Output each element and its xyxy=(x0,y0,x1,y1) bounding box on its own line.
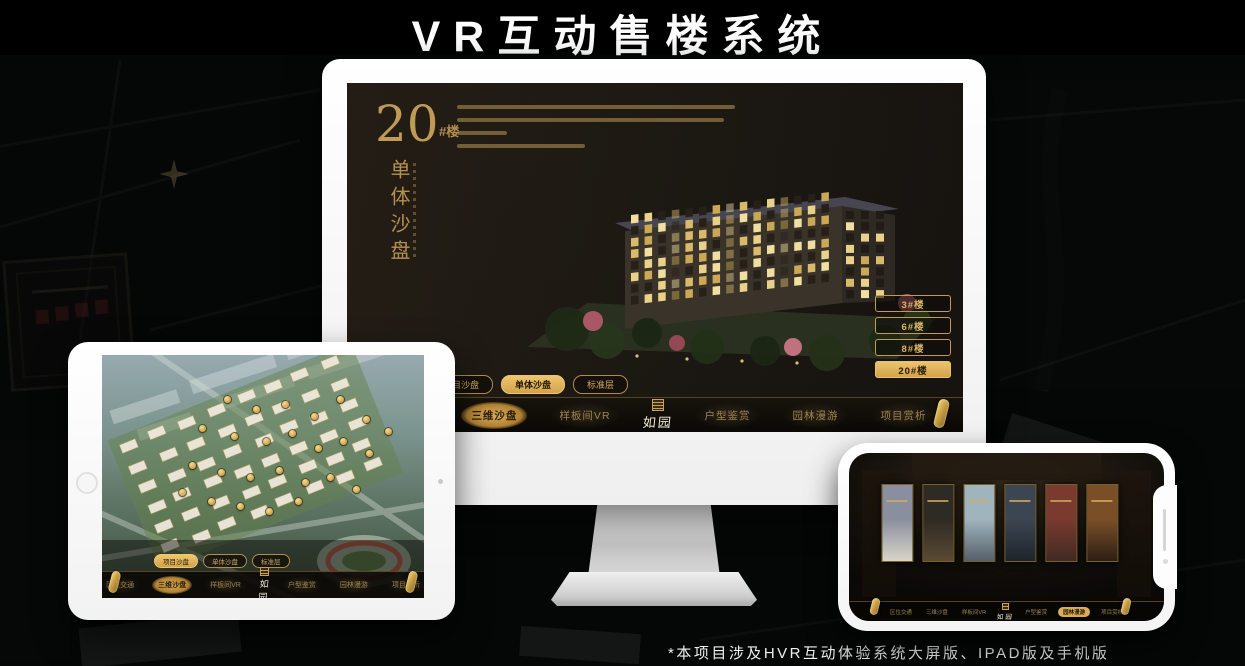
building-marker[interactable] xyxy=(276,467,283,474)
floor-button[interactable]: 8#楼 xyxy=(875,339,951,356)
tablet-screen: 项目沙盘单体沙盘标准层 区位交通三维沙盘样板间VR如园户型鉴赏园林漫游项目赏析 xyxy=(102,355,424,598)
nav-item-园林漫游[interactable]: 园林漫游 xyxy=(334,576,374,594)
logo-text: 如园 xyxy=(997,611,1015,621)
monitor-stand-base xyxy=(551,572,757,606)
logo-seal-icon xyxy=(260,567,269,576)
nav-item-三维沙盘[interactable]: 三维沙盘 xyxy=(461,402,527,429)
phone-speaker xyxy=(1163,509,1166,551)
gallery-panel[interactable] xyxy=(922,484,954,562)
hero-building-number: 20 xyxy=(375,99,439,149)
building-marker[interactable] xyxy=(199,425,206,432)
footnote: *本项目涉及HVR互动体验系统大屏版、IPAD版及手机版 xyxy=(668,642,1109,663)
page-title: VR互动售楼系统 xyxy=(0,2,1245,64)
hero-paragraph-line xyxy=(457,131,507,135)
nav-item-样板间VR[interactable]: 样板间VR xyxy=(549,402,620,429)
nav-logo: 如园 xyxy=(643,399,673,431)
building-marker[interactable] xyxy=(327,474,334,481)
phone-bottom-nav: 区位交通三维沙盘样板间VR如园户型鉴赏园林漫游项目赏析 xyxy=(849,601,1164,621)
gallery-panel[interactable] xyxy=(1045,484,1077,562)
nav-item-户型鉴赏[interactable]: 户型鉴赏 xyxy=(282,576,322,594)
building-marker[interactable] xyxy=(385,428,392,435)
nav-item-项目赏析[interactable]: 项目赏析 xyxy=(871,402,937,429)
building-marker[interactable] xyxy=(282,401,289,408)
building-marker[interactable] xyxy=(231,433,238,440)
phone-screen: 区位交通三维沙盘样板间VR如园户型鉴赏园林漫游项目赏析 xyxy=(849,453,1164,621)
building-marker[interactable] xyxy=(353,486,360,493)
phone-device: 区位交通三维沙盘样板间VR如园户型鉴赏园林漫游项目赏析 xyxy=(838,443,1175,631)
gallery-panel[interactable] xyxy=(1086,484,1118,562)
subtab-单体沙盘[interactable]: 单体沙盘 xyxy=(203,554,247,568)
building-marker[interactable] xyxy=(179,489,186,496)
monitor-stand-neck xyxy=(588,505,720,577)
nav-item-户型鉴赏[interactable]: 户型鉴赏 xyxy=(695,402,761,429)
floor-button[interactable]: 6#楼 xyxy=(875,317,951,334)
nav-item-样板间VR[interactable]: 样板间VR xyxy=(204,576,247,594)
gallery-panel[interactable] xyxy=(1004,484,1036,562)
floor-button[interactable]: 20#楼 xyxy=(875,361,951,378)
building-marker[interactable] xyxy=(237,503,244,510)
hero-paragraph-line xyxy=(457,105,735,109)
building-marker[interactable] xyxy=(363,416,370,423)
interior-beam-decor xyxy=(912,453,1101,480)
stage: VR互动售楼系统 20 #楼 单体沙盘 xyxy=(0,0,1245,666)
subtabs-group: 项目沙盘单体沙盘标准层 xyxy=(429,375,628,394)
nav-item-园林漫游[interactable]: 园林漫游 xyxy=(1058,607,1090,617)
nav-logo: 如园 xyxy=(997,603,1014,621)
building-illustration xyxy=(497,151,937,386)
logo-seal-icon xyxy=(1002,603,1009,610)
subtab-单体沙盘[interactable]: 单体沙盘 xyxy=(501,375,565,394)
nav-item-三维沙盘[interactable]: 三维沙盘 xyxy=(923,606,951,618)
building-marker[interactable] xyxy=(315,445,322,452)
building-marker[interactable] xyxy=(218,469,225,476)
subtab-标准层[interactable]: 标准层 xyxy=(252,554,290,568)
building-marker[interactable] xyxy=(337,396,344,403)
interior-column-decor xyxy=(1117,470,1152,598)
subtab-标准层[interactable]: 标准层 xyxy=(573,375,628,394)
floor-buttons-group: 3#楼6#楼8#楼20#楼 xyxy=(875,295,951,378)
building-marker[interactable] xyxy=(340,438,347,445)
building-marker[interactable] xyxy=(189,462,196,469)
gallery-panel[interactable] xyxy=(881,484,913,562)
tablet-camera xyxy=(438,479,443,484)
logo-seal-icon xyxy=(652,399,664,411)
building-marker[interactable] xyxy=(366,450,373,457)
building-marker[interactable] xyxy=(302,479,309,486)
building-marker[interactable] xyxy=(266,508,273,515)
building-marker[interactable] xyxy=(289,430,296,437)
nav-item-园林漫游[interactable]: 园林漫游 xyxy=(783,402,849,429)
subtab-项目沙盘[interactable]: 项目沙盘 xyxy=(154,554,198,568)
building-marker[interactable] xyxy=(311,413,318,420)
floor-button[interactable]: 3#楼 xyxy=(875,295,951,312)
tablet-device: 项目沙盘单体沙盘标准层 区位交通三维沙盘样板间VR如园户型鉴赏园林漫游项目赏析 xyxy=(68,342,455,620)
hero-subtitle-decor xyxy=(413,163,416,259)
gallery-panel[interactable] xyxy=(963,484,995,562)
logo-text: 如园 xyxy=(642,412,674,431)
scene-gallery xyxy=(881,484,1118,562)
phone-notch xyxy=(1153,485,1177,589)
nav-item-区位交通[interactable]: 区位交通 xyxy=(887,606,915,618)
building-marker[interactable] xyxy=(295,498,302,505)
nav-item-三维沙盘[interactable]: 三维沙盘 xyxy=(152,576,192,594)
nav-logo: 如园 xyxy=(259,567,270,598)
building-marker[interactable] xyxy=(208,498,215,505)
hero-paragraph xyxy=(457,105,735,157)
tablet-subtabs-group: 项目沙盘单体沙盘标准层 xyxy=(154,554,290,568)
tablet-bottom-nav: 区位交通三维沙盘样板间VR如园户型鉴赏园林漫游项目赏析 xyxy=(102,571,424,598)
building-marker[interactable] xyxy=(224,396,231,403)
hero-vertical-title: 单体沙盘 xyxy=(385,159,414,267)
building-marker[interactable] xyxy=(253,406,260,413)
building-marker[interactable] xyxy=(263,438,270,445)
nav-item-区位交通[interactable]: 区位交通 xyxy=(102,576,140,594)
phone-camera xyxy=(1163,559,1168,564)
nav-item-户型鉴赏[interactable]: 户型鉴赏 xyxy=(1022,606,1050,618)
logo-text: 如园 xyxy=(257,577,271,598)
building-marker[interactable] xyxy=(247,474,254,481)
hero-paragraph-line xyxy=(457,118,724,122)
nav-item-样板间VR[interactable]: 样板间VR xyxy=(959,606,989,618)
tablet-home-button[interactable] xyxy=(76,472,98,494)
hero-paragraph-line xyxy=(457,144,585,148)
